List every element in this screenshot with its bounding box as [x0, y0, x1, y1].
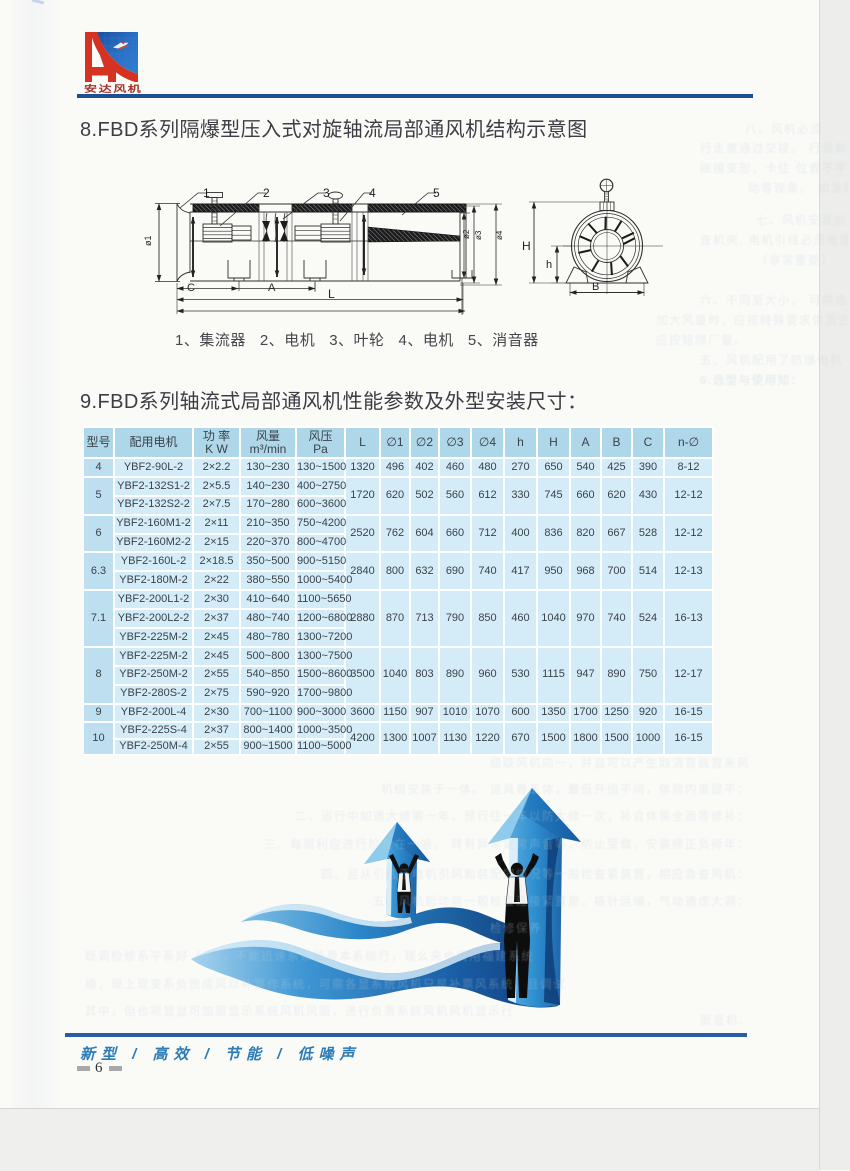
svg-text:1: 1: [203, 186, 210, 200]
svg-text:A: A: [268, 282, 276, 294]
svg-text:ø1: ø1: [143, 235, 153, 246]
svg-text:H: H: [522, 239, 531, 253]
svg-text:4: 4: [369, 186, 376, 200]
svg-text:5: 5: [433, 186, 440, 200]
svg-text:3: 3: [323, 186, 330, 200]
svg-text:2: 2: [263, 186, 270, 200]
svg-text:ø2: ø2: [462, 229, 471, 239]
svg-text:ø3: ø3: [474, 230, 483, 240]
svg-text:ø4: ø4: [495, 230, 504, 240]
svg-text:C: C: [187, 282, 195, 294]
svg-text:B: B: [592, 281, 599, 293]
svg-text:h: h: [546, 259, 552, 271]
svg-text:L: L: [328, 287, 335, 301]
